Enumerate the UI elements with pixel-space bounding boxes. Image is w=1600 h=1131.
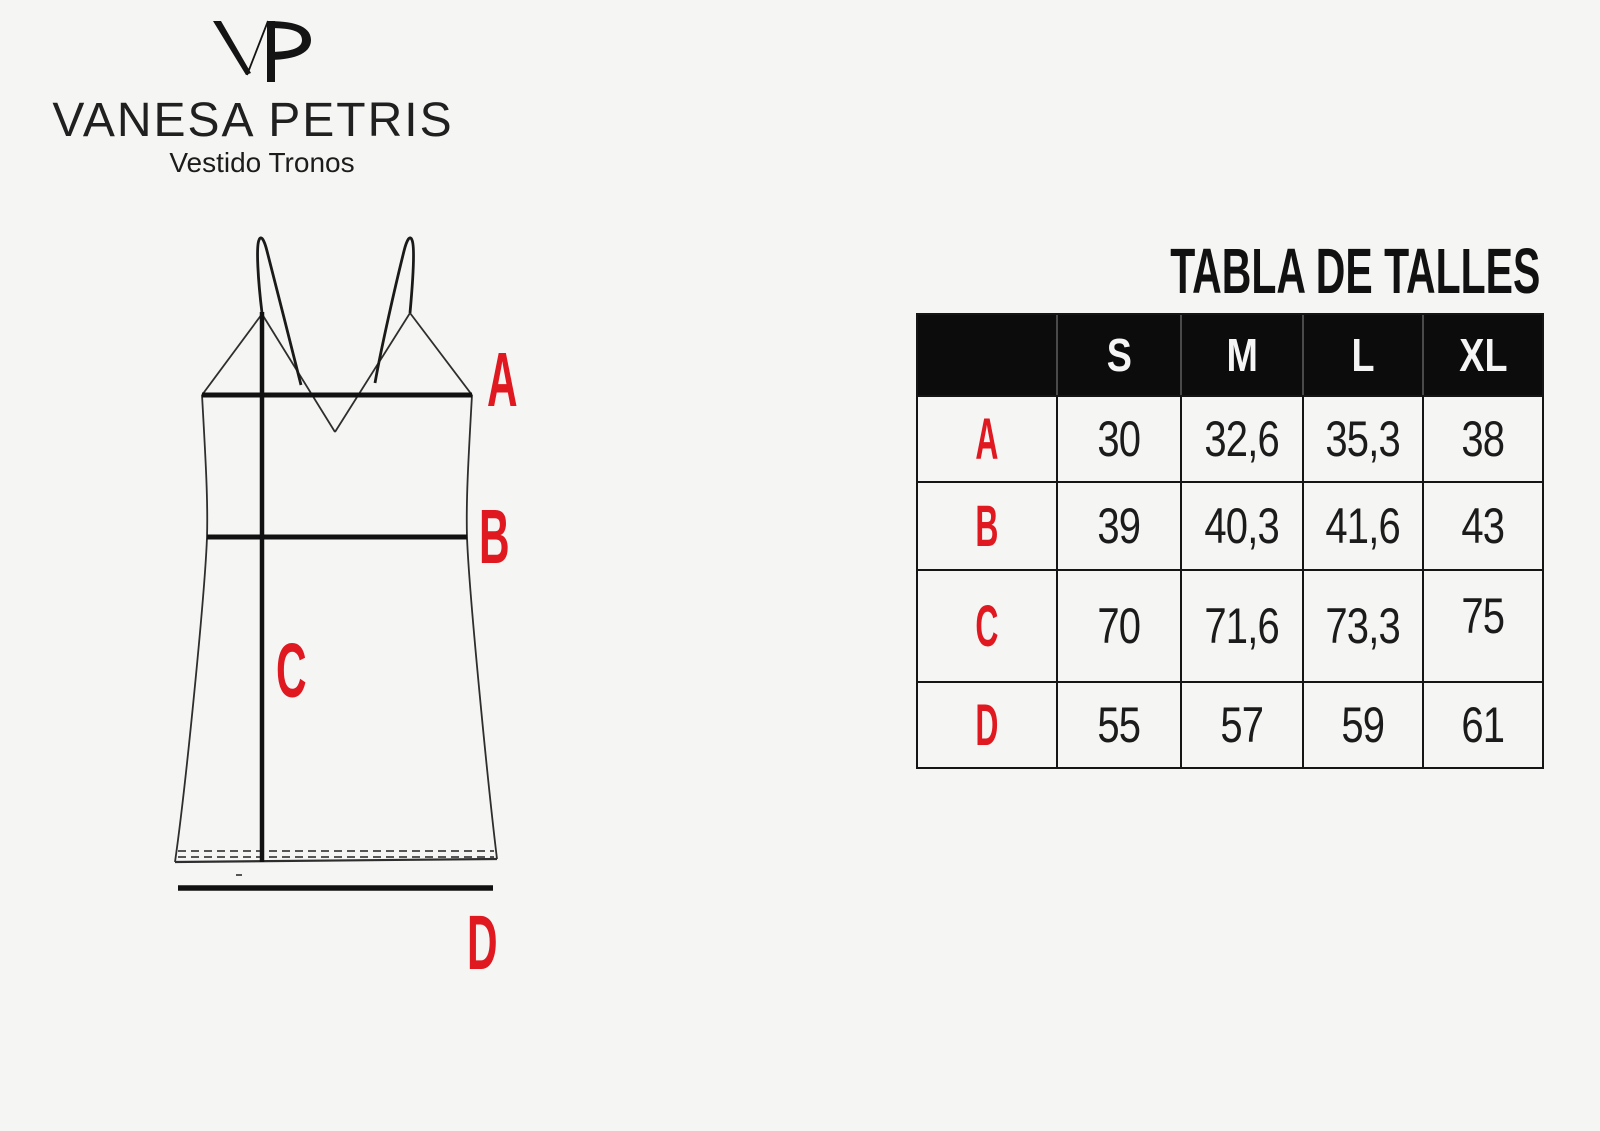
row-b-xl: 43 [1422,481,1542,569]
row-d-label-cell: D [918,681,1056,767]
header-size-xl: XL [1422,315,1542,395]
dress-right-strap [375,238,413,383]
row-c-label-cell: C [918,569,1056,681]
value-a-xl: 38 [1462,410,1505,468]
row-a-label: A [975,406,998,473]
row-c-m: 71,6 [1180,569,1302,681]
row-c-xl: 75 [1422,569,1542,681]
value-a-l: 35,3 [1326,410,1401,468]
dress-hem-edge [175,859,497,862]
row-d-label: D [975,692,998,759]
row-b-s: 39 [1056,481,1180,569]
value-d-m: 57 [1221,696,1264,754]
size-s-label: S [1106,328,1131,382]
size-xl-label: XL [1459,328,1507,382]
value-b-s: 39 [1098,497,1141,555]
row-c-s: 70 [1056,569,1180,681]
measure-label-c: C [276,629,307,715]
row-d-xl: 61 [1422,681,1542,767]
brand-monogram-text: VP [0,0,1,1]
dress-diagram: A B C D [140,225,540,985]
row-b-m: 40,3 [1180,481,1302,569]
value-b-l: 41,6 [1326,497,1401,555]
row-a-l: 35,3 [1302,395,1422,481]
row-c-label: C [975,593,998,660]
row-a-m: 32,6 [1180,395,1302,481]
dress-right-edge [467,395,497,859]
product-name: Vestido Tronos [112,147,412,179]
value-c-s: 70 [1098,597,1141,655]
row-b-l: 41,6 [1302,481,1422,569]
measure-label-d: D [467,901,498,985]
header-corner-cell [918,315,1056,395]
size-l-label: L [1351,328,1374,382]
header-size-l: L [1302,315,1422,395]
row-a-label-cell: A [918,395,1056,481]
value-c-xl: 75 [1462,587,1505,645]
header-size-s: S [1056,315,1180,395]
value-c-m: 71,6 [1205,597,1280,655]
size-table-title: TABLA DE TALLES [1170,234,1540,308]
row-d-m: 57 [1180,681,1302,767]
measure-label-a: A [487,338,518,424]
row-b-label: B [975,493,998,560]
row-a-s: 30 [1056,395,1180,481]
brand-monogram-icon [210,14,315,88]
dress-left-edge [175,395,207,862]
value-c-l: 73,3 [1326,597,1401,655]
row-d-s: 55 [1056,681,1180,767]
value-b-xl: 43 [1462,497,1505,555]
value-d-s: 55 [1098,696,1141,754]
measure-label-b: B [479,495,510,581]
row-c-l: 73,3 [1302,569,1422,681]
value-b-m: 40,3 [1205,497,1280,555]
row-b-label-cell: B [918,481,1056,569]
row-d-l: 59 [1302,681,1422,767]
hem-stitch-lines [178,851,494,857]
value-a-s: 30 [1098,410,1141,468]
dress-neckline [202,313,472,432]
size-guide-page: VP VANESA PETRIS Vestido Tronos A B C D … [0,0,1600,1131]
size-table: S M L XL A 30 32,6 35,3 38 B [916,313,1544,769]
size-m-label: M [1226,328,1257,382]
brand-name: VANESA PETRIS [0,93,506,148]
value-a-m: 32,6 [1205,410,1280,468]
header-size-m: M [1180,315,1302,395]
value-d-l: 59 [1342,696,1385,754]
row-a-xl: 38 [1422,395,1542,481]
value-d-xl: 61 [1462,696,1505,754]
